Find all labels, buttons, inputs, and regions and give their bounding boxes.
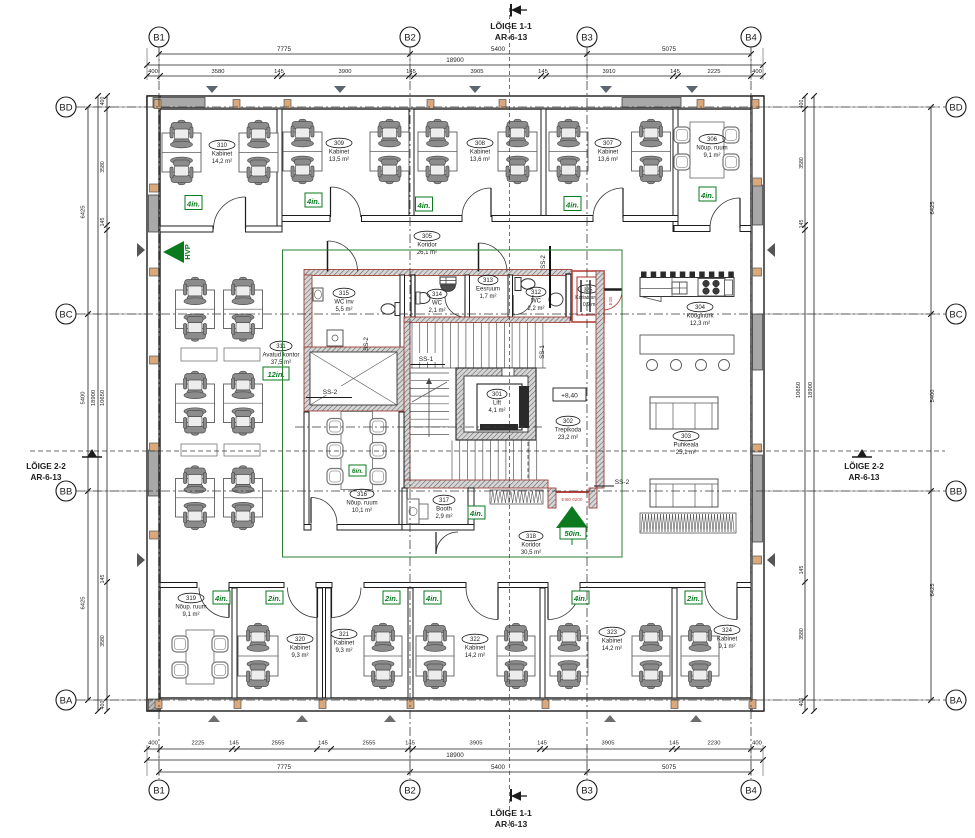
svg-text:3905: 3905 — [470, 741, 483, 747]
svg-text:400: 400 — [148, 69, 158, 75]
svg-text:321: 321 — [339, 632, 350, 638]
svg-text:316: 316 — [357, 492, 368, 498]
svg-text:145: 145 — [799, 220, 805, 229]
svg-text:Lift: Lift — [493, 401, 501, 407]
svg-text:5,5 m²: 5,5 m² — [335, 307, 352, 313]
svg-text:318: 318 — [526, 534, 537, 540]
svg-text:Booth: Booth — [436, 507, 452, 513]
svg-text:B3: B3 — [581, 786, 593, 797]
svg-text:AR-6-13: AR-6-13 — [849, 473, 880, 482]
svg-text:B1: B1 — [153, 786, 165, 797]
svg-text:26,1 m²: 26,1 m² — [417, 250, 437, 256]
svg-text:3905: 3905 — [471, 69, 484, 75]
svg-text:Trepikoda: Trepikoda — [555, 428, 582, 434]
svg-text:3580: 3580 — [100, 161, 106, 173]
svg-text:400: 400 — [752, 69, 762, 75]
svg-text:5400: 5400 — [930, 390, 936, 403]
svg-text:50in.: 50in. — [564, 529, 581, 538]
svg-text:4in.: 4in. — [565, 201, 579, 210]
svg-text:312: 312 — [531, 290, 542, 296]
svg-text:145: 145 — [669, 741, 679, 747]
svg-text:14,2 m²: 14,2 m² — [465, 653, 485, 659]
svg-text:145: 145 — [229, 741, 239, 747]
svg-text:18900: 18900 — [446, 57, 464, 64]
svg-text:LÕIGE 2-2: LÕIGE 2-2 — [26, 461, 66, 471]
svg-text:400: 400 — [100, 701, 106, 710]
svg-text:B3: B3 — [581, 33, 593, 44]
svg-text:2555: 2555 — [272, 741, 285, 747]
svg-text:400: 400 — [752, 741, 762, 747]
svg-text:2,2 m²: 2,2 m² — [527, 306, 544, 312]
svg-text:BA: BA — [950, 696, 963, 707]
svg-text:145: 145 — [670, 69, 680, 75]
svg-text:6in.: 6in. — [352, 468, 363, 475]
svg-text:Eesruum: Eesruum — [476, 287, 500, 293]
svg-text:Kabinet: Kabinet — [290, 646, 311, 652]
svg-text:3905: 3905 — [602, 741, 615, 747]
svg-text:13,5 m²: 13,5 m² — [329, 157, 349, 163]
svg-text:302: 302 — [563, 419, 574, 425]
svg-text:BA: BA — [60, 696, 73, 707]
svg-text:145: 145 — [318, 741, 328, 747]
svg-text:B4: B4 — [745, 33, 757, 44]
svg-text:AR-6-13: AR-6-13 — [31, 473, 62, 482]
svg-text:4in.: 4in. — [186, 200, 200, 209]
svg-text:EI60 0200: EI60 0200 — [562, 497, 583, 502]
svg-text:145: 145 — [537, 741, 547, 747]
svg-text:400: 400 — [799, 698, 805, 707]
svg-text:311: 311 — [276, 344, 286, 350]
svg-text:Puhkeala: Puhkeala — [673, 443, 699, 449]
svg-text:145: 145 — [538, 69, 548, 75]
svg-text:LÕIGE 1-1: LÕIGE 1-1 — [490, 21, 532, 31]
svg-text:Nõup. ruum: Nõup. ruum — [696, 146, 727, 152]
svg-text:Kabinet: Kabinet — [334, 641, 355, 647]
svg-text:3580: 3580 — [799, 628, 805, 640]
svg-text:Kabinet: Kabinet — [470, 150, 491, 156]
svg-text:Kabinet: Kabinet — [212, 152, 233, 158]
svg-text:310: 310 — [217, 143, 228, 149]
svg-text:145: 145 — [406, 69, 416, 75]
svg-text:+8,40: +8,40 — [561, 393, 578, 400]
svg-text:1,7 m²: 1,7 m² — [479, 294, 496, 300]
svg-text:LÕIGE 2-2: LÕIGE 2-2 — [844, 461, 884, 471]
svg-text:319: 319 — [186, 596, 197, 602]
svg-text:2225: 2225 — [192, 741, 205, 747]
svg-text:Nõup. ruum: Nõup. ruum — [346, 501, 377, 507]
svg-text:EI30: EI30 — [608, 296, 613, 305]
svg-text:B4: B4 — [745, 786, 757, 797]
svg-text:Kabinet: Kabinet — [465, 646, 486, 652]
svg-text:309: 309 — [334, 141, 345, 147]
svg-text:13,6 m²: 13,6 m² — [598, 157, 618, 163]
svg-text:BC: BC — [949, 310, 962, 321]
svg-text:6425: 6425 — [930, 584, 936, 597]
svg-text:B2: B2 — [404, 33, 416, 44]
svg-text:4in.: 4in. — [469, 509, 483, 518]
svg-text:308: 308 — [475, 141, 486, 147]
svg-text:9,1 m²: 9,1 m² — [703, 153, 720, 159]
svg-text:3580: 3580 — [100, 635, 106, 647]
svg-text:SS-2: SS-2 — [363, 337, 370, 351]
svg-text:2230: 2230 — [708, 741, 721, 747]
svg-text:301: 301 — [492, 392, 503, 398]
svg-text:9,1 m²: 9,1 m² — [182, 612, 199, 618]
svg-text:BD: BD — [949, 103, 962, 114]
svg-text:AR-6-13: AR-6-13 — [495, 32, 528, 42]
svg-text:10650: 10650 — [796, 382, 802, 398]
svg-text:14,2 m²: 14,2 m² — [602, 646, 622, 652]
svg-text:SS-1: SS-1 — [419, 356, 434, 363]
svg-text:400: 400 — [148, 741, 158, 747]
svg-text:Avatud kontor: Avatud kontor — [263, 353, 300, 359]
svg-text:18900: 18900 — [808, 382, 814, 398]
svg-text:Kööginurk: Kööginurk — [686, 314, 714, 320]
svg-text:SS-2: SS-2 — [323, 389, 338, 396]
svg-text:WC: WC — [432, 301, 443, 307]
svg-text:324: 324 — [722, 628, 733, 634]
svg-text:306: 306 — [707, 137, 718, 143]
svg-text:HVP: HVP — [183, 244, 192, 259]
svg-text:5400: 5400 — [81, 392, 87, 405]
svg-text:12in.: 12in. — [267, 370, 284, 379]
svg-text:SS-1: SS-1 — [539, 345, 546, 359]
svg-text:Kabinet: Kabinet — [602, 639, 623, 645]
svg-text:BB: BB — [950, 487, 963, 498]
svg-text:13,6 m²: 13,6 m² — [470, 157, 490, 163]
svg-text:4,1 m²: 4,1 m² — [488, 408, 505, 414]
svg-text:5075: 5075 — [662, 764, 677, 771]
svg-text:3910: 3910 — [603, 69, 616, 75]
svg-text:LÕIGE 1-1: LÕIGE 1-1 — [490, 808, 532, 818]
svg-text:14,2 m²: 14,2 m² — [212, 159, 232, 165]
svg-text:307: 307 — [603, 141, 614, 147]
svg-text:BB: BB — [60, 487, 73, 498]
svg-text:Koridor: Koridor — [521, 543, 540, 549]
svg-text:2in.: 2in. — [267, 594, 281, 603]
svg-text:6425: 6425 — [930, 202, 936, 215]
svg-text:Kabinet: Kabinet — [598, 150, 619, 156]
svg-text:18900: 18900 — [446, 752, 464, 759]
svg-text:Kabinet: Kabinet — [717, 637, 738, 643]
svg-text:23,2 m²: 23,2 m² — [558, 435, 578, 441]
svg-text:3580: 3580 — [799, 157, 805, 169]
svg-text:10650: 10650 — [100, 390, 106, 406]
svg-text:304: 304 — [695, 305, 706, 311]
svg-text:AR-6-13: AR-6-13 — [495, 819, 528, 829]
svg-text:2555: 2555 — [363, 741, 376, 747]
svg-text:5075: 5075 — [662, 46, 677, 53]
svg-text:314: 314 — [432, 292, 443, 298]
svg-text:BC: BC — [59, 310, 72, 321]
svg-text:2in.: 2in. — [384, 594, 398, 603]
svg-text:315: 315 — [339, 291, 350, 297]
svg-text:B1: B1 — [153, 33, 165, 44]
svg-text:9,3 m²: 9,3 m² — [291, 653, 308, 659]
svg-text:145: 145 — [799, 566, 805, 575]
svg-text:7775: 7775 — [277, 764, 292, 771]
svg-text:317: 317 — [439, 498, 450, 504]
svg-text:4in.: 4in. — [214, 594, 228, 603]
svg-text:Nõup. ruum: Nõup. ruum — [175, 605, 206, 611]
svg-text:Kabinet: Kabinet — [329, 150, 350, 156]
svg-text:B2: B2 — [404, 786, 416, 797]
svg-text:5400: 5400 — [491, 764, 506, 771]
svg-text:4in.: 4in. — [417, 201, 431, 210]
svg-text:7775: 7775 — [277, 46, 292, 53]
svg-text:400: 400 — [100, 97, 106, 106]
svg-text:145: 145 — [100, 218, 106, 227]
svg-text:0,9 m²: 0,9 m² — [583, 302, 598, 308]
svg-text:2225: 2225 — [708, 69, 721, 75]
svg-text:BD: BD — [59, 103, 72, 114]
svg-text:6425: 6425 — [81, 206, 87, 219]
svg-text:4in.: 4in. — [573, 594, 587, 603]
svg-text:30,5 m²: 30,5 m² — [521, 550, 541, 556]
svg-text:12,3 m²: 12,3 m² — [690, 321, 710, 327]
svg-text:303: 303 — [681, 434, 692, 440]
svg-text:Koridor: Koridor — [417, 243, 436, 249]
svg-text:305: 305 — [422, 234, 433, 240]
svg-text:4in.: 4in. — [306, 197, 320, 206]
svg-text:313: 313 — [483, 278, 494, 284]
svg-text:10,1 m²: 10,1 m² — [352, 508, 372, 514]
svg-text:SS-2: SS-2 — [540, 255, 547, 269]
svg-text:323: 323 — [607, 630, 618, 636]
svg-text:5400: 5400 — [491, 46, 506, 53]
svg-text:37,5 m²: 37,5 m² — [271, 360, 291, 366]
svg-text:325: 325 — [584, 288, 593, 294]
svg-text:9,3 m²: 9,3 m² — [335, 648, 352, 654]
svg-text:2,1 m²: 2,1 m² — [428, 308, 445, 314]
svg-text:320: 320 — [295, 637, 306, 643]
svg-text:2in.: 2in. — [686, 594, 700, 603]
svg-text:322: 322 — [470, 637, 481, 643]
svg-text:WC inv: WC inv — [334, 300, 353, 306]
svg-text:4in.: 4in. — [425, 594, 439, 603]
svg-text:3580: 3580 — [212, 69, 225, 75]
svg-text:2,9 m²: 2,9 m² — [435, 514, 452, 520]
svg-text:3900: 3900 — [339, 69, 352, 75]
svg-text:145: 145 — [274, 69, 284, 75]
svg-text:4in.: 4in. — [700, 191, 714, 200]
svg-text:18900: 18900 — [91, 390, 97, 406]
svg-text:6425: 6425 — [81, 597, 87, 610]
svg-text:145: 145 — [100, 575, 106, 584]
svg-text:9,1 m²: 9,1 m² — [718, 644, 735, 650]
